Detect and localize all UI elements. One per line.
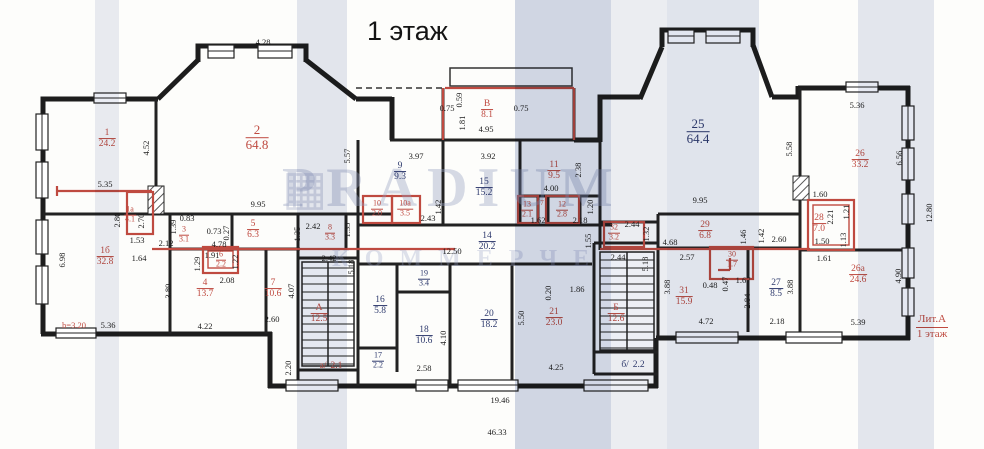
room-label-9: 99.3	[394, 161, 406, 183]
dimension-label: 0.75	[514, 103, 529, 113]
dimension-label: 1.67	[736, 275, 751, 285]
dimension-label: 0.48	[703, 280, 718, 290]
dimension-label: 5.36	[101, 320, 116, 330]
dimension-label: 0.47	[720, 277, 730, 292]
litera-line1: Лит.А	[916, 313, 948, 328]
dimension-label: 1.39	[168, 220, 178, 235]
litera-label: Лит.А 1 этаж	[916, 313, 948, 342]
room-label-А: А12.5	[311, 303, 328, 325]
dimension-label: 7	[540, 199, 544, 207]
room-label-11: 119.5	[547, 160, 560, 182]
dimension-label: 4.90	[893, 269, 903, 284]
dimension-label: 2.57	[680, 252, 695, 262]
dimension-label: 12.50	[442, 246, 461, 256]
room-label-27: 278.5	[769, 278, 783, 300]
room-label-Б: Б12.6	[608, 303, 625, 325]
room-label-1б: 1б32.8	[97, 246, 114, 268]
dimension-label: 1.42	[433, 200, 443, 215]
dimension-label: 5.18	[640, 257, 650, 272]
room-label-26а: 26а24.6	[849, 264, 867, 286]
dimension-label: 1.64	[132, 253, 147, 263]
room-label-б: б/2.2	[619, 360, 644, 370]
room-label-18: 1810.6	[416, 325, 433, 347]
dimension-label: 2.43	[421, 213, 436, 223]
room-label-10а: 10а3.5	[397, 200, 413, 219]
dimension-label: 4.68	[663, 237, 678, 247]
dimension-label: 2.08	[220, 275, 235, 285]
dimension-label: 3.97	[409, 151, 424, 161]
dimension-label: 2.84	[742, 294, 752, 309]
room-label-19: 193.4	[418, 270, 430, 289]
room-label-14: 1420.2	[479, 231, 496, 253]
dimension-label: 1.62	[531, 215, 546, 225]
room-label-а: а/2.1	[318, 361, 343, 371]
room-label-25: 2564.4	[687, 117, 710, 147]
room-label-8: 83.3	[325, 224, 335, 243]
dimension-label: 2.38	[573, 163, 583, 178]
dimension-label: 1.86	[570, 284, 585, 294]
dimension-label: 6.56	[894, 151, 904, 166]
labels-layer: 1 этаж Лит.А 1 этаж 124.2264.81а4.11б32.…	[0, 0, 984, 449]
plan-title: 1 этаж	[367, 16, 448, 47]
dimension-label: 1.42	[756, 229, 766, 244]
dimension-label: 9.95	[251, 199, 266, 209]
dimension-label: 1.50	[815, 236, 830, 246]
dimension-label: 2.44	[625, 219, 640, 229]
dimension-label: 5.50	[516, 311, 526, 326]
dimension-label: 4.72	[699, 316, 714, 326]
dimension-label: 2.21	[825, 210, 835, 225]
dimension-label: 1.22	[230, 255, 240, 270]
dimension-label: 2.18	[770, 316, 785, 326]
room-label-29: 296.8	[698, 220, 712, 242]
dimension-label: 19.46	[490, 395, 509, 405]
dimension-label: 2.18	[573, 215, 588, 225]
dimension-label: 2.20	[283, 361, 293, 376]
room-label-31: 3115.9	[676, 286, 693, 308]
dimension-label: 2.12	[159, 238, 174, 248]
dimension-label: 5.57	[342, 149, 352, 164]
dimension-label: 4.22	[198, 321, 213, 331]
room-label-3: 33.1	[179, 226, 189, 245]
room-label-26: 2633.2	[852, 149, 869, 171]
room-label-21: 2123.0	[546, 307, 563, 329]
room-label-2: 264.8	[246, 123, 269, 153]
dimension-label: 3.92	[481, 151, 496, 161]
room-label-17: 172.2	[372, 352, 384, 371]
dimension-label: 1.55	[583, 234, 593, 249]
dimension-label: 1.91	[205, 250, 220, 260]
dimension-label: 4.95	[479, 124, 494, 134]
dimension-label: 3.88	[662, 280, 672, 295]
dimension-label: 5.35	[98, 179, 113, 189]
dimension-label: 6.98	[57, 253, 67, 268]
dimension-label: 2.58	[417, 363, 432, 373]
dimension-label: 4.00	[544, 183, 559, 193]
dimension-label: 4.07	[286, 284, 296, 299]
dimension-label: 1.20	[585, 200, 595, 215]
dimension-label: 4.52	[141, 141, 151, 156]
room-label-1: 124.2	[99, 128, 116, 150]
dimension-label: 4.28	[256, 37, 271, 47]
dimension-label: 5.58	[784, 142, 794, 157]
dimension-label: 2.70	[136, 214, 146, 229]
dimension-label: 1.35	[292, 227, 302, 242]
dimension-label: 1.61	[817, 253, 832, 263]
dimension-label: 0.59	[454, 93, 464, 108]
dimension-label: 5.36	[850, 100, 865, 110]
room-label-20: 2018.2	[481, 309, 498, 331]
room-label-4: 413.7	[197, 278, 214, 300]
room-label-1а: 1а4.1	[124, 206, 136, 225]
dimension-label: 3.89	[163, 284, 173, 299]
dimension-label: 2.60	[772, 234, 787, 244]
room-label-В: В8.1	[481, 99, 493, 121]
room-label-7: 710.6	[265, 278, 282, 300]
dimension-label: 1.60	[813, 189, 828, 199]
dimension-label: 2.42	[322, 253, 337, 263]
room-label-16: 165.8	[373, 295, 387, 317]
dimension-label: 2.44	[611, 252, 626, 262]
dimension-label: 2.60	[265, 314, 280, 324]
litera-line2: 1 этаж	[916, 328, 948, 342]
dimension-label: 1.21	[841, 205, 851, 220]
dimension-label: 0.83	[180, 213, 195, 223]
dimension-label: 1.53	[130, 235, 145, 245]
dimension-label: 9.95	[693, 195, 708, 205]
room-label-32: 323.2	[608, 224, 620, 243]
dimension-label: 12.80	[924, 203, 934, 222]
dimension-label: 0.75	[440, 103, 455, 113]
room-label-12: 122.8	[556, 201, 568, 220]
room-label-15: 1515.2	[476, 177, 493, 199]
dimension-label: 5.18	[346, 260, 356, 275]
dimension-label: 2.80	[112, 213, 122, 228]
dimension-label: 4.78	[212, 239, 227, 249]
floorplan-scan-page: ▦ PRADIUM КОММЕРЧЕ 1 этаж Лит.А 1 этаж 1…	[0, 0, 984, 449]
dimension-label: 1.81	[457, 116, 467, 131]
room-label-30: 301.7	[726, 251, 738, 270]
dimension-label: 4.25	[549, 362, 564, 372]
dimension-label: 0.73	[207, 226, 222, 236]
dimension-label: 1.13	[838, 233, 848, 248]
dimension-label: 1.32	[641, 227, 651, 242]
room-label-10: 102.0	[371, 200, 383, 219]
dimension-label: 46.33	[487, 427, 506, 437]
room-label-28: 287.0	[812, 213, 826, 235]
dimension-label: 1.35	[342, 223, 352, 238]
dimension-label: 0.20	[543, 286, 553, 301]
dimension-label: 1.29	[192, 257, 202, 272]
dimension-label: h=3.20	[62, 320, 86, 330]
room-label-5: 56.3	[247, 219, 259, 241]
dimension-label: 4.10	[438, 331, 448, 346]
dimension-label: 3.88	[785, 280, 795, 295]
dimension-label: 2.42	[306, 221, 321, 231]
dimension-label: 1.46	[738, 230, 748, 245]
dimension-label: 5.39	[851, 317, 866, 327]
